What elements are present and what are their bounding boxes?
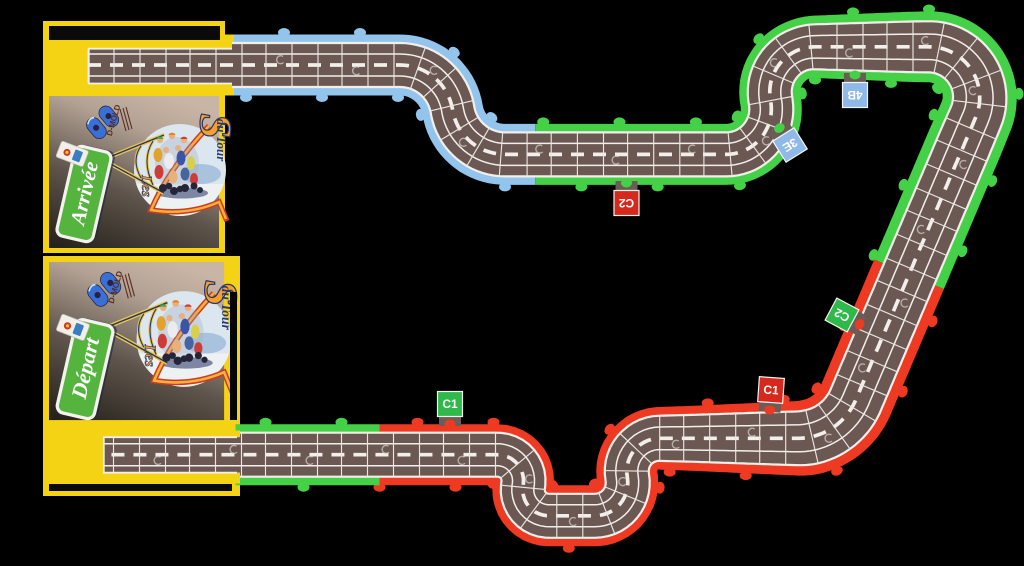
svg-text:C1: C1 [442,397,458,411]
svg-text:du Tour: du Tour [214,119,229,162]
svg-text:Les: Les [138,174,154,197]
svg-text:C2: C2 [619,196,635,210]
svg-text:4B: 4B [847,88,863,102]
svg-text:Les: Les [141,343,158,367]
svg-text:C1: C1 [763,382,780,397]
